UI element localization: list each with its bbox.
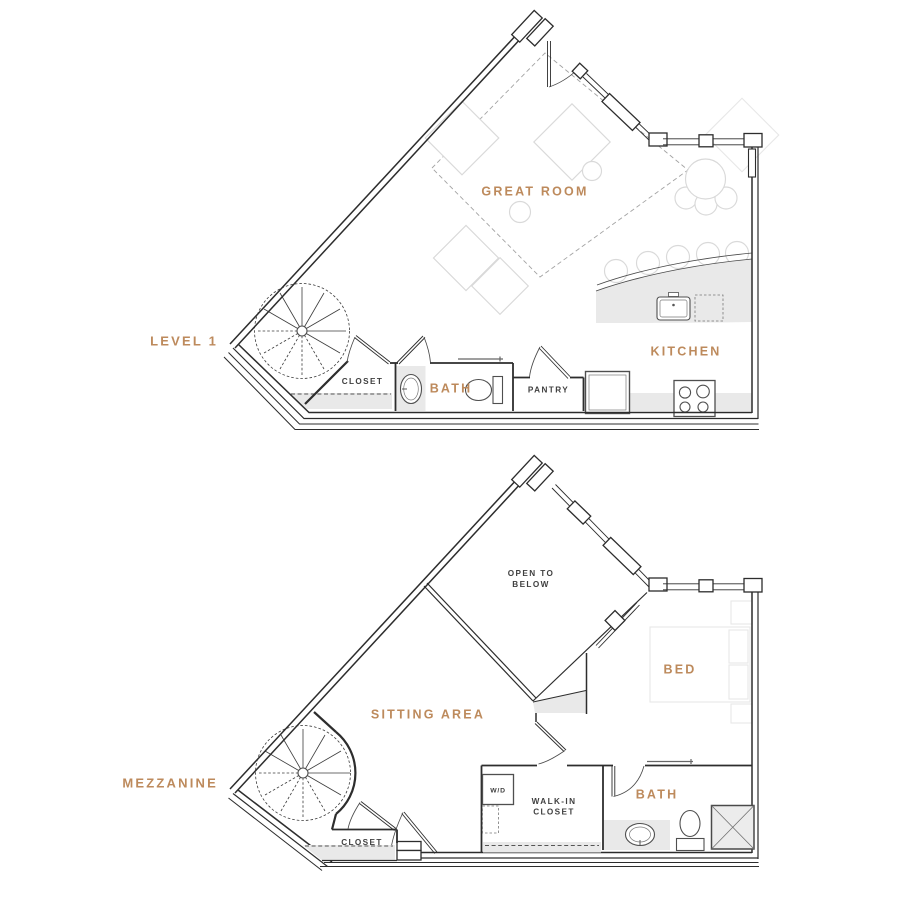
- window-marker: [603, 537, 641, 574]
- level1-kitchen-label: KITCHEN: [651, 345, 722, 359]
- level1-kitchen-island: [596, 242, 752, 324]
- level1-plan: GREAT ROOM KITCHEN LEVEL 1 CLOSET BATH P…: [150, 10, 779, 429]
- floor-plan-page: GREAT ROOM KITCHEN LEVEL 1 CLOSET BATH P…: [0, 0, 900, 900]
- window-marker: [602, 94, 640, 131]
- mezzanine-bed-label: BED: [664, 663, 697, 677]
- window-marker: [567, 501, 590, 524]
- stove: [674, 381, 715, 417]
- toilet-tank: [493, 377, 503, 404]
- nightstand: [731, 601, 752, 624]
- mezzanine-open-to-below: [424, 583, 647, 722]
- floor-plan-drawing: GREAT ROOM KITCHEN LEVEL 1 CLOSET BATH P…: [0, 0, 900, 900]
- level1-kitchen-counter: [586, 372, 753, 417]
- level1-spiral-stair: [255, 284, 350, 379]
- mezzanine-plan: OPEN TO BELOW SITTING AREA BED BATH MEZZ…: [122, 455, 762, 870]
- mezzanine-bedroom-door: [535, 722, 566, 764]
- shower: [712, 806, 755, 850]
- mezzanine-open-below-label-1: OPEN TO: [508, 569, 555, 578]
- level1-title: LEVEL 1: [150, 334, 218, 349]
- mezzanine-title: MEZZANINE: [122, 776, 218, 791]
- mezzanine-bath-fixtures: [604, 759, 754, 851]
- level1-bath-label: BATH: [430, 382, 473, 396]
- nightstand: [731, 704, 752, 723]
- window-marker: [699, 580, 713, 592]
- pillow: [729, 665, 748, 699]
- level1-closet-label: CLOSET: [342, 377, 384, 386]
- mezzanine-bath-label: BATH: [636, 788, 679, 802]
- mezzanine-closet-label: CLOSET: [341, 838, 383, 847]
- mezzanine-wd-label: W/D: [490, 788, 506, 795]
- mezzanine-spiral-stair: [256, 712, 356, 830]
- mezzanine-sitting-area-label: SITTING AREA: [371, 708, 485, 722]
- mezzanine-walkin-label-1: WALK-IN: [532, 797, 577, 806]
- level1-exterior-walls: [224, 19, 759, 430]
- mezzanine-closet-door: [348, 802, 396, 831]
- toilet-tank: [677, 839, 705, 851]
- level1-interior-doors: [347, 336, 570, 379]
- level1-pantry-label: PANTRY: [528, 386, 569, 395]
- pillow: [729, 630, 748, 663]
- level1-patio-table: [705, 98, 779, 172]
- mezzanine-open-below-label-2: BELOW: [512, 580, 549, 589]
- window-marker: [749, 149, 756, 177]
- mezzanine-storage-fixtures: [303, 775, 601, 861]
- level1-entry-door: [548, 41, 588, 87]
- window-marker: [699, 135, 713, 147]
- mezzanine-walkin-label-2: CLOSET: [533, 808, 575, 817]
- island-sink: [657, 297, 690, 320]
- toilet-bowl: [680, 811, 700, 837]
- refrigerator: [586, 372, 630, 414]
- level1-great-room-label: GREAT ROOM: [481, 185, 588, 199]
